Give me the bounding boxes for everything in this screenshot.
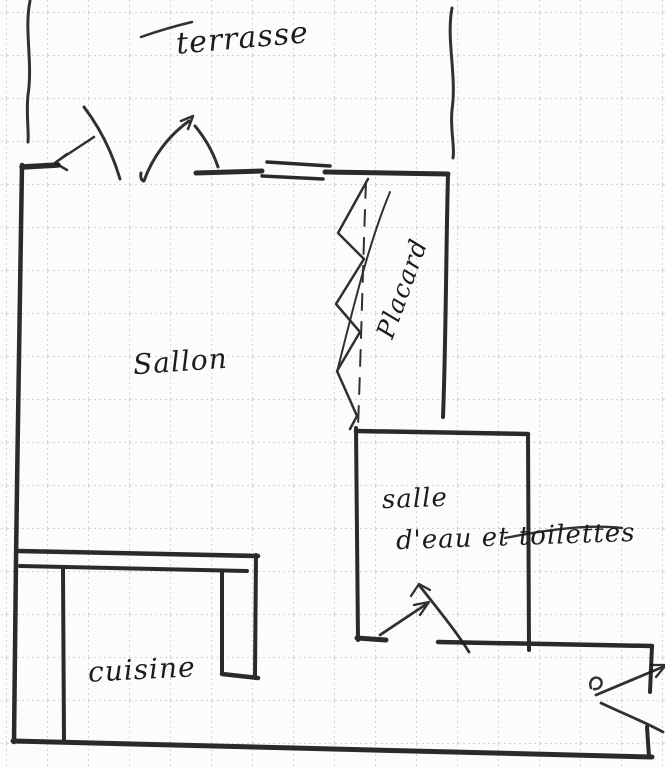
wall-right-lower-below-door <box>647 727 649 757</box>
room-label-bathroom-line2: d'eau et toilettes <box>396 520 636 554</box>
floor-plan-drawing <box>0 0 665 768</box>
grid-paper-pattern <box>0 0 665 768</box>
wall-right-lower-above-door <box>650 646 652 692</box>
kitchen-wall-right <box>255 555 256 676</box>
floor-plan-sheet: terrasse Sallon Placard salle d'eau et t… <box>0 0 665 768</box>
kitchen-wall-left <box>63 569 64 742</box>
room-label-kitchen: cuisine <box>87 653 196 687</box>
room-label-bathroom-line1: salle <box>382 485 449 513</box>
bathroom-wall-left <box>356 428 358 640</box>
wall-top-right <box>325 172 448 174</box>
room-label-living-room: Sallon <box>132 345 228 380</box>
bathroom-wall-top <box>356 431 528 434</box>
wall-top-left-stub <box>22 165 58 167</box>
bathroom-wall-foot <box>357 638 386 640</box>
wall-top-mid <box>196 171 262 173</box>
